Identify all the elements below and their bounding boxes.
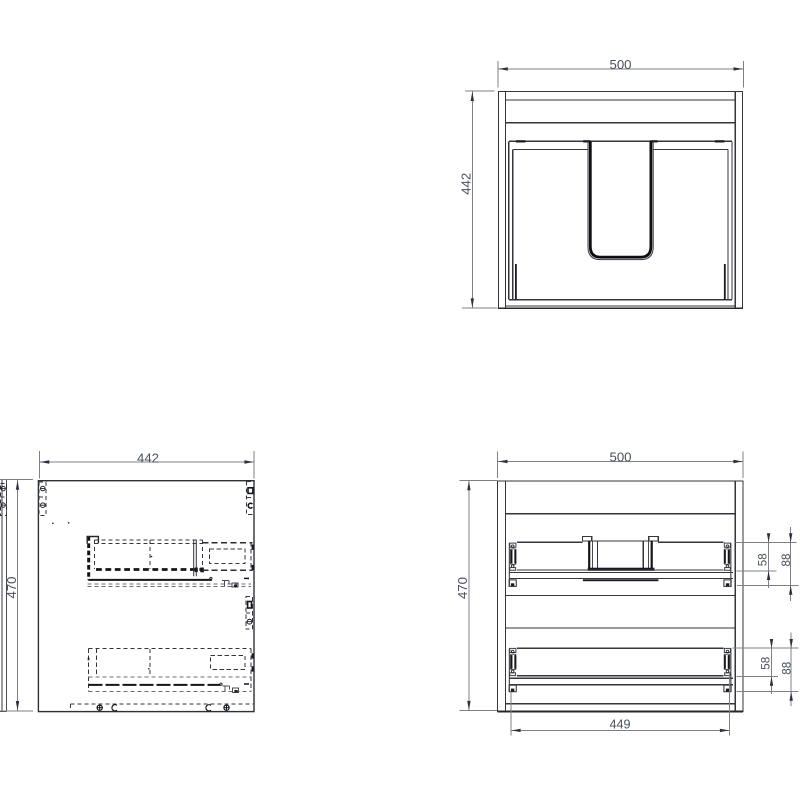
svg-text:88: 88: [780, 662, 793, 675]
svg-text:470: 470: [455, 577, 470, 599]
svg-text:58: 58: [757, 553, 770, 566]
svg-text:442: 442: [137, 451, 159, 466]
svg-text:442: 442: [459, 173, 474, 195]
svg-text:449: 449: [609, 717, 630, 731]
svg-text:500: 500: [609, 449, 631, 464]
svg-text:58: 58: [760, 657, 773, 670]
svg-text:470: 470: [4, 576, 19, 598]
svg-text:500: 500: [609, 57, 631, 72]
svg-text:88: 88: [780, 554, 793, 567]
